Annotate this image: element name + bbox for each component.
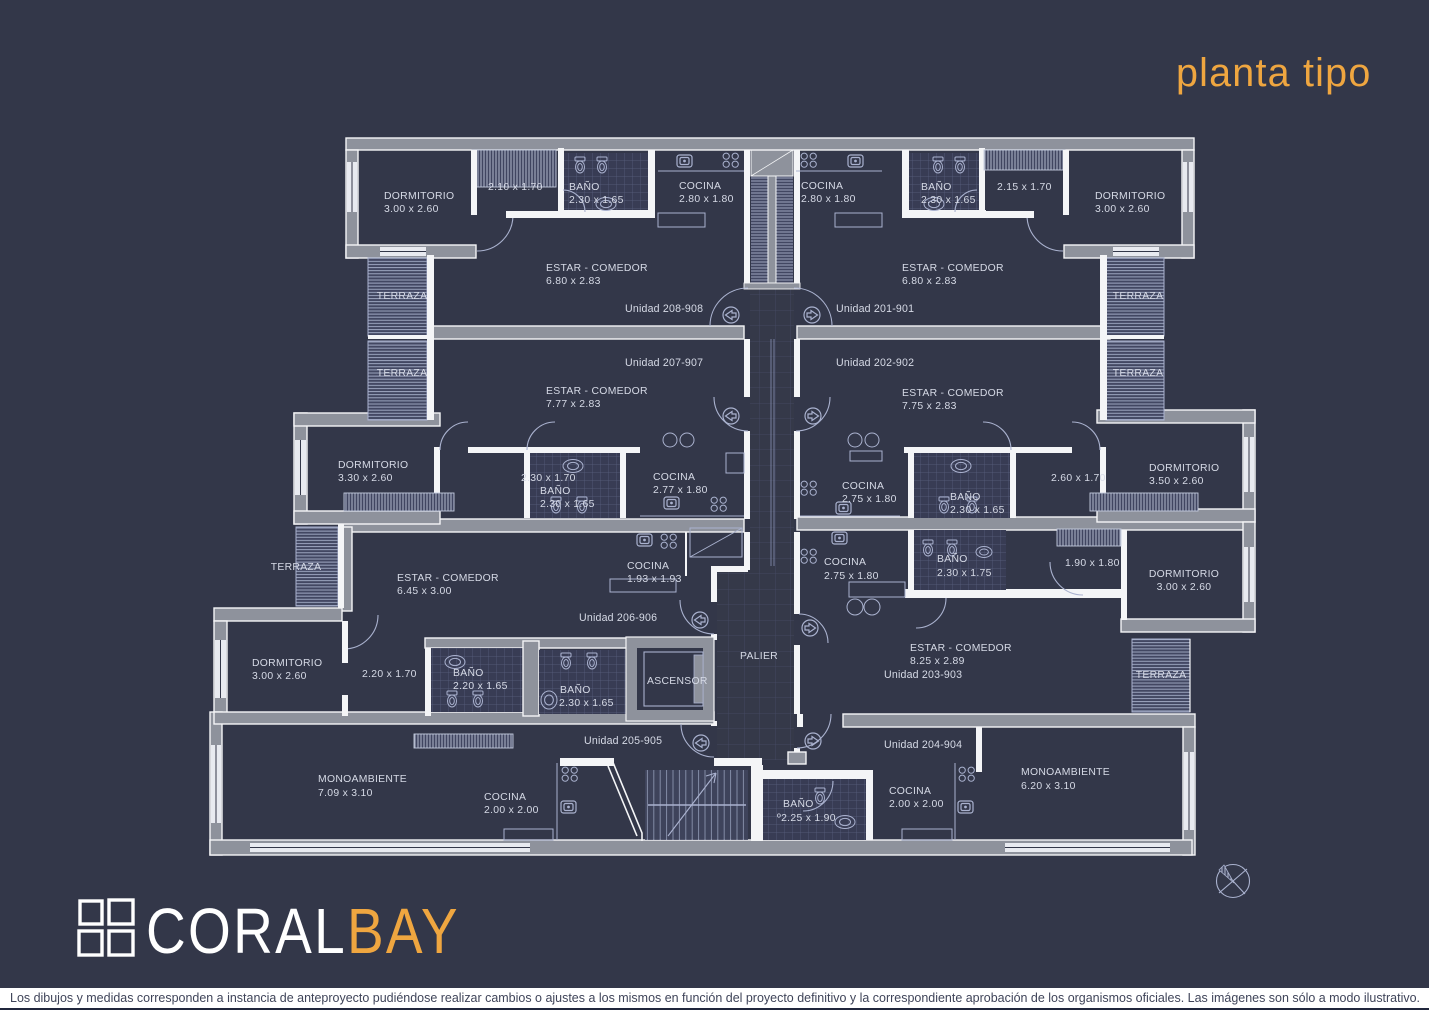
svg-text:TERRAZA: TERRAZA bbox=[1113, 291, 1164, 302]
svg-text:PALIER: PALIER bbox=[740, 651, 778, 662]
svg-text:8.25 x 2.89: 8.25 x 2.89 bbox=[910, 656, 965, 667]
svg-text:2.00 x 2.00: 2.00 x 2.00 bbox=[484, 805, 539, 816]
svg-text:COCINA: COCINA bbox=[653, 472, 695, 483]
svg-text:2.10 x 1.70: 2.10 x 1.70 bbox=[488, 182, 543, 193]
svg-text:2.77 x 1.80: 2.77 x 1.80 bbox=[653, 485, 708, 496]
svg-text:MONOAMBIENTE: MONOAMBIENTE bbox=[318, 774, 407, 785]
svg-text:MONOAMBIENTE: MONOAMBIENTE bbox=[1021, 767, 1110, 778]
svg-text:DORMITORIO: DORMITORIO bbox=[1149, 463, 1219, 474]
svg-text:3.00 x 2.60: 3.00 x 2.60 bbox=[384, 204, 439, 215]
svg-text:COCINA: COCINA bbox=[484, 792, 526, 803]
svg-text:1.93 x 1.93: 1.93 x 1.93 bbox=[627, 574, 682, 585]
svg-text:2.30 x 1.65: 2.30 x 1.65 bbox=[921, 195, 976, 206]
svg-text:TERRAZA: TERRAZA bbox=[377, 291, 428, 302]
svg-text:1.90 x 1.80: 1.90 x 1.80 bbox=[1065, 558, 1120, 569]
svg-text:6.80 x 2.83: 6.80 x 2.83 bbox=[902, 276, 957, 287]
svg-text:Unidad 203-903: Unidad 203-903 bbox=[884, 669, 962, 681]
svg-text:COCINA: COCINA bbox=[801, 181, 843, 192]
svg-text:BAÑO: BAÑO bbox=[783, 797, 814, 810]
svg-text:3.00 x 2.60: 3.00 x 2.60 bbox=[1157, 582, 1212, 593]
svg-text:COCINA: COCINA bbox=[679, 181, 721, 192]
svg-text:ESTAR - COMEDOR: ESTAR - COMEDOR bbox=[910, 643, 1012, 654]
svg-text:2.30 x 1.65: 2.30 x 1.65 bbox=[950, 505, 1005, 516]
svg-text:2.60 x 1.70: 2.60 x 1.70 bbox=[1051, 473, 1106, 484]
svg-text:2.00 x 2.00: 2.00 x 2.00 bbox=[889, 799, 944, 810]
svg-text:BAÑO: BAÑO bbox=[950, 490, 981, 503]
svg-text:TERRAZA: TERRAZA bbox=[1136, 670, 1187, 681]
svg-text:TERRAZA: TERRAZA bbox=[1113, 368, 1164, 379]
svg-text:BAÑO: BAÑO bbox=[453, 666, 484, 679]
svg-text:BAÑO: BAÑO bbox=[540, 484, 571, 497]
svg-text:BAÑO: BAÑO bbox=[921, 180, 952, 193]
svg-text:Unidad 204-904: Unidad 204-904 bbox=[884, 739, 962, 751]
svg-text:Los dibujos y medidas correspo: Los dibujos y medidas corresponden a ins… bbox=[10, 991, 1420, 1005]
svg-text:2.75 x 1.80: 2.75 x 1.80 bbox=[842, 494, 897, 505]
svg-text:Unidad 206-906: Unidad 206-906 bbox=[579, 612, 657, 624]
svg-text:3.00 x 2.60: 3.00 x 2.60 bbox=[1095, 204, 1150, 215]
svg-text:COCINA: COCINA bbox=[627, 561, 669, 572]
svg-text:DORMITORIO: DORMITORIO bbox=[1149, 569, 1219, 580]
svg-text:º2.25 x 1.90: º2.25 x 1.90 bbox=[777, 813, 836, 824]
svg-text:6.80 x 2.83: 6.80 x 2.83 bbox=[546, 276, 601, 287]
svg-text:planta tipo: planta tipo bbox=[1176, 51, 1371, 95]
svg-text:Unidad 207-907: Unidad 207-907 bbox=[625, 357, 703, 369]
svg-text:DORMITORIO: DORMITORIO bbox=[384, 191, 454, 202]
svg-text:2.30 x 1.65: 2.30 x 1.65 bbox=[559, 698, 614, 709]
svg-text:ESTAR - COMEDOR: ESTAR - COMEDOR bbox=[546, 263, 648, 274]
svg-text:DORMITORIO: DORMITORIO bbox=[252, 658, 322, 669]
svg-text:2.75 x 1.80: 2.75 x 1.80 bbox=[824, 571, 879, 582]
svg-text:2.30 x 1.65: 2.30 x 1.65 bbox=[540, 499, 595, 510]
svg-text:7.75 x 2.83: 7.75 x 2.83 bbox=[902, 401, 957, 412]
svg-text:2.30 x 1.75: 2.30 x 1.75 bbox=[937, 568, 992, 579]
svg-text:BAÑO: BAÑO bbox=[937, 552, 968, 565]
svg-text:COCINA: COCINA bbox=[824, 557, 866, 568]
svg-text:DORMITORIO: DORMITORIO bbox=[338, 460, 408, 471]
svg-text:2.20 x 1.70: 2.20 x 1.70 bbox=[362, 669, 417, 680]
svg-text:3.30 x 2.60: 3.30 x 2.60 bbox=[338, 473, 393, 484]
svg-text:CORALBAY: CORALBAY bbox=[146, 895, 460, 967]
svg-text:Unidad 202-902: Unidad 202-902 bbox=[836, 357, 914, 369]
svg-text:ESTAR - COMEDOR: ESTAR - COMEDOR bbox=[546, 386, 648, 397]
svg-text:6.45 x 3.00: 6.45 x 3.00 bbox=[397, 586, 452, 597]
svg-text:2.20 x 1.65: 2.20 x 1.65 bbox=[453, 681, 508, 692]
svg-text:COCINA: COCINA bbox=[842, 481, 884, 492]
svg-text:3.50 x 2.60: 3.50 x 2.60 bbox=[1149, 476, 1204, 487]
svg-text:ASCENSOR: ASCENSOR bbox=[647, 676, 708, 687]
svg-text:ESTAR - COMEDOR: ESTAR - COMEDOR bbox=[902, 388, 1004, 399]
svg-text:6.20 x 3.10: 6.20 x 3.10 bbox=[1021, 781, 1076, 792]
svg-text:7.09 x 3.10: 7.09 x 3.10 bbox=[318, 788, 373, 799]
svg-text:Unidad 208-908: Unidad 208-908 bbox=[625, 303, 703, 315]
svg-text:BAÑO: BAÑO bbox=[560, 683, 591, 696]
svg-text:Unidad 201-901: Unidad 201-901 bbox=[836, 303, 914, 315]
svg-text:7.77 x 2.83: 7.77 x 2.83 bbox=[546, 399, 601, 410]
svg-text:2.15 x 1.70: 2.15 x 1.70 bbox=[997, 182, 1052, 193]
svg-text:2.80 x 1.80: 2.80 x 1.80 bbox=[679, 194, 734, 205]
svg-text:2.30 x 1.65: 2.30 x 1.65 bbox=[569, 195, 624, 206]
svg-text:ESTAR - COMEDOR: ESTAR - COMEDOR bbox=[902, 263, 1004, 274]
svg-text:COCINA: COCINA bbox=[889, 786, 931, 797]
svg-text:Unidad 205-905: Unidad 205-905 bbox=[584, 735, 662, 747]
svg-text:2.30 x 1.70: 2.30 x 1.70 bbox=[521, 473, 576, 484]
svg-text:2.80 x 1.80: 2.80 x 1.80 bbox=[801, 194, 856, 205]
svg-text:3.00 x 2.60: 3.00 x 2.60 bbox=[252, 671, 307, 682]
svg-text:ESTAR - COMEDOR: ESTAR - COMEDOR bbox=[397, 573, 499, 584]
svg-text:TERRAZA: TERRAZA bbox=[377, 368, 428, 379]
svg-text:DORMITORIO: DORMITORIO bbox=[1095, 191, 1165, 202]
svg-text:TERRAZA: TERRAZA bbox=[271, 562, 322, 573]
svg-text:BAÑO: BAÑO bbox=[569, 180, 600, 193]
